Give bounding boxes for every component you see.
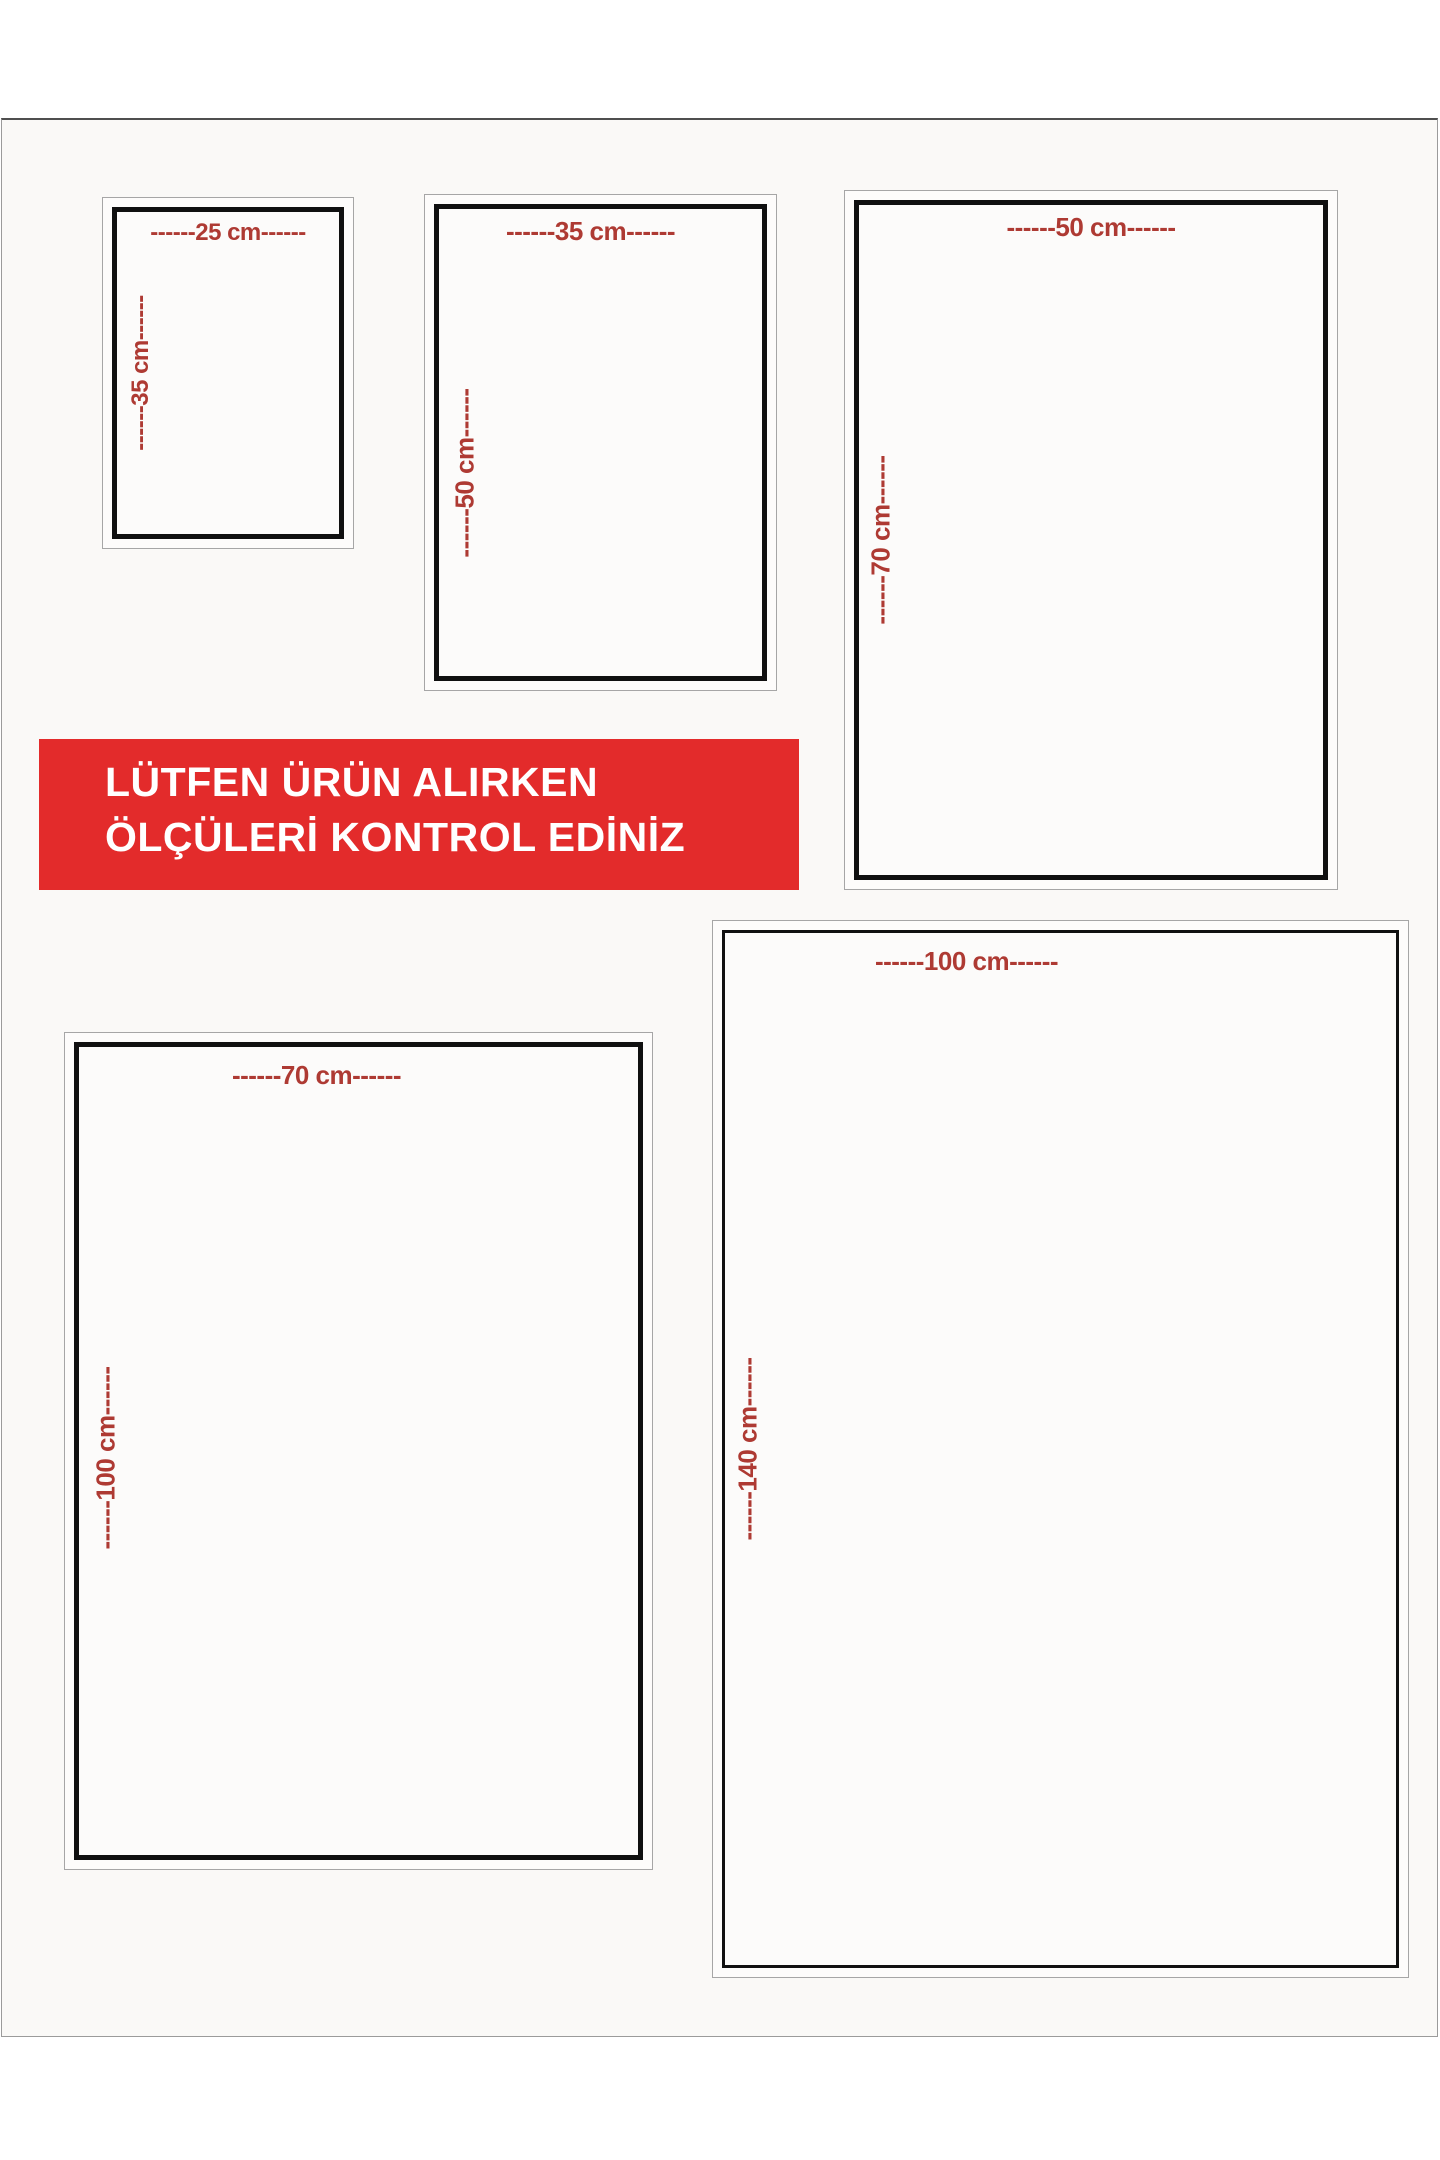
size-box-50x70-frame: ------50 cm------ ------70 cm------: [854, 200, 1328, 880]
width-dimension-label: ------100 cm------: [875, 946, 1058, 977]
size-box-70x100: ------70 cm------ ------100 cm------: [64, 1032, 653, 1870]
height-dimension-label: ------100 cm------: [91, 1366, 122, 1549]
size-chart-photo: ------25 cm------ ------35 cm------ ----…: [1, 118, 1438, 2037]
notice-banner: LÜTFEN ÜRÜN ALIRKEN ÖLÇÜLERİ KONTROL EDİ…: [39, 739, 799, 890]
size-box-25x35-frame: ------25 cm------ ------35 cm------: [112, 207, 344, 539]
size-box-70x100-frame: ------70 cm------ ------100 cm------: [74, 1042, 643, 1860]
height-dimension-label: ------35 cm------: [127, 295, 155, 450]
height-dimension-label: ------50 cm------: [450, 388, 481, 557]
size-box-35x50-frame: ------35 cm------ ------50 cm------: [434, 204, 767, 681]
height-dimension-label: ------70 cm------: [866, 455, 897, 624]
width-dimension-label: ------25 cm------: [150, 219, 305, 247]
notice-line-2: ÖLÇÜLERİ KONTROL EDİNİZ: [105, 810, 789, 865]
size-box-50x70: ------50 cm------ ------70 cm------: [844, 190, 1338, 890]
size-box-35x50: ------35 cm------ ------50 cm------: [424, 194, 777, 691]
size-box-100x140: ------100 cm------ ------140 cm------: [712, 920, 1409, 1978]
width-dimension-label: ------70 cm------: [232, 1060, 401, 1091]
size-box-100x140-frame: ------100 cm------ ------140 cm------: [722, 930, 1399, 1968]
size-box-25x35: ------25 cm------ ------35 cm------: [102, 197, 354, 549]
notice-line-1: LÜTFEN ÜRÜN ALIRKEN: [105, 755, 789, 810]
width-dimension-label: ------35 cm------: [506, 216, 675, 247]
width-dimension-label: ------50 cm------: [1006, 212, 1175, 243]
height-dimension-label: ------140 cm------: [733, 1357, 764, 1540]
